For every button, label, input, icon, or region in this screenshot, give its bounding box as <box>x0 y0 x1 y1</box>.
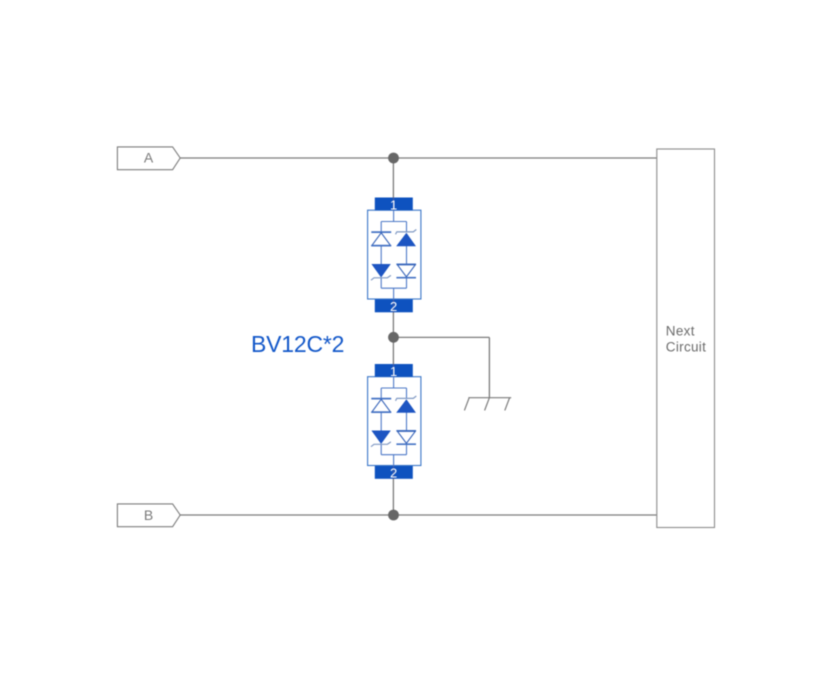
svg-text:BV12C*2: BV12C*2 <box>251 331 344 357</box>
svg-text:Circuit: Circuit <box>666 340 706 355</box>
svg-text:2: 2 <box>390 299 397 314</box>
svg-text:A: A <box>144 150 154 166</box>
svg-text:B: B <box>144 507 153 523</box>
svg-text:Next: Next <box>666 323 695 338</box>
